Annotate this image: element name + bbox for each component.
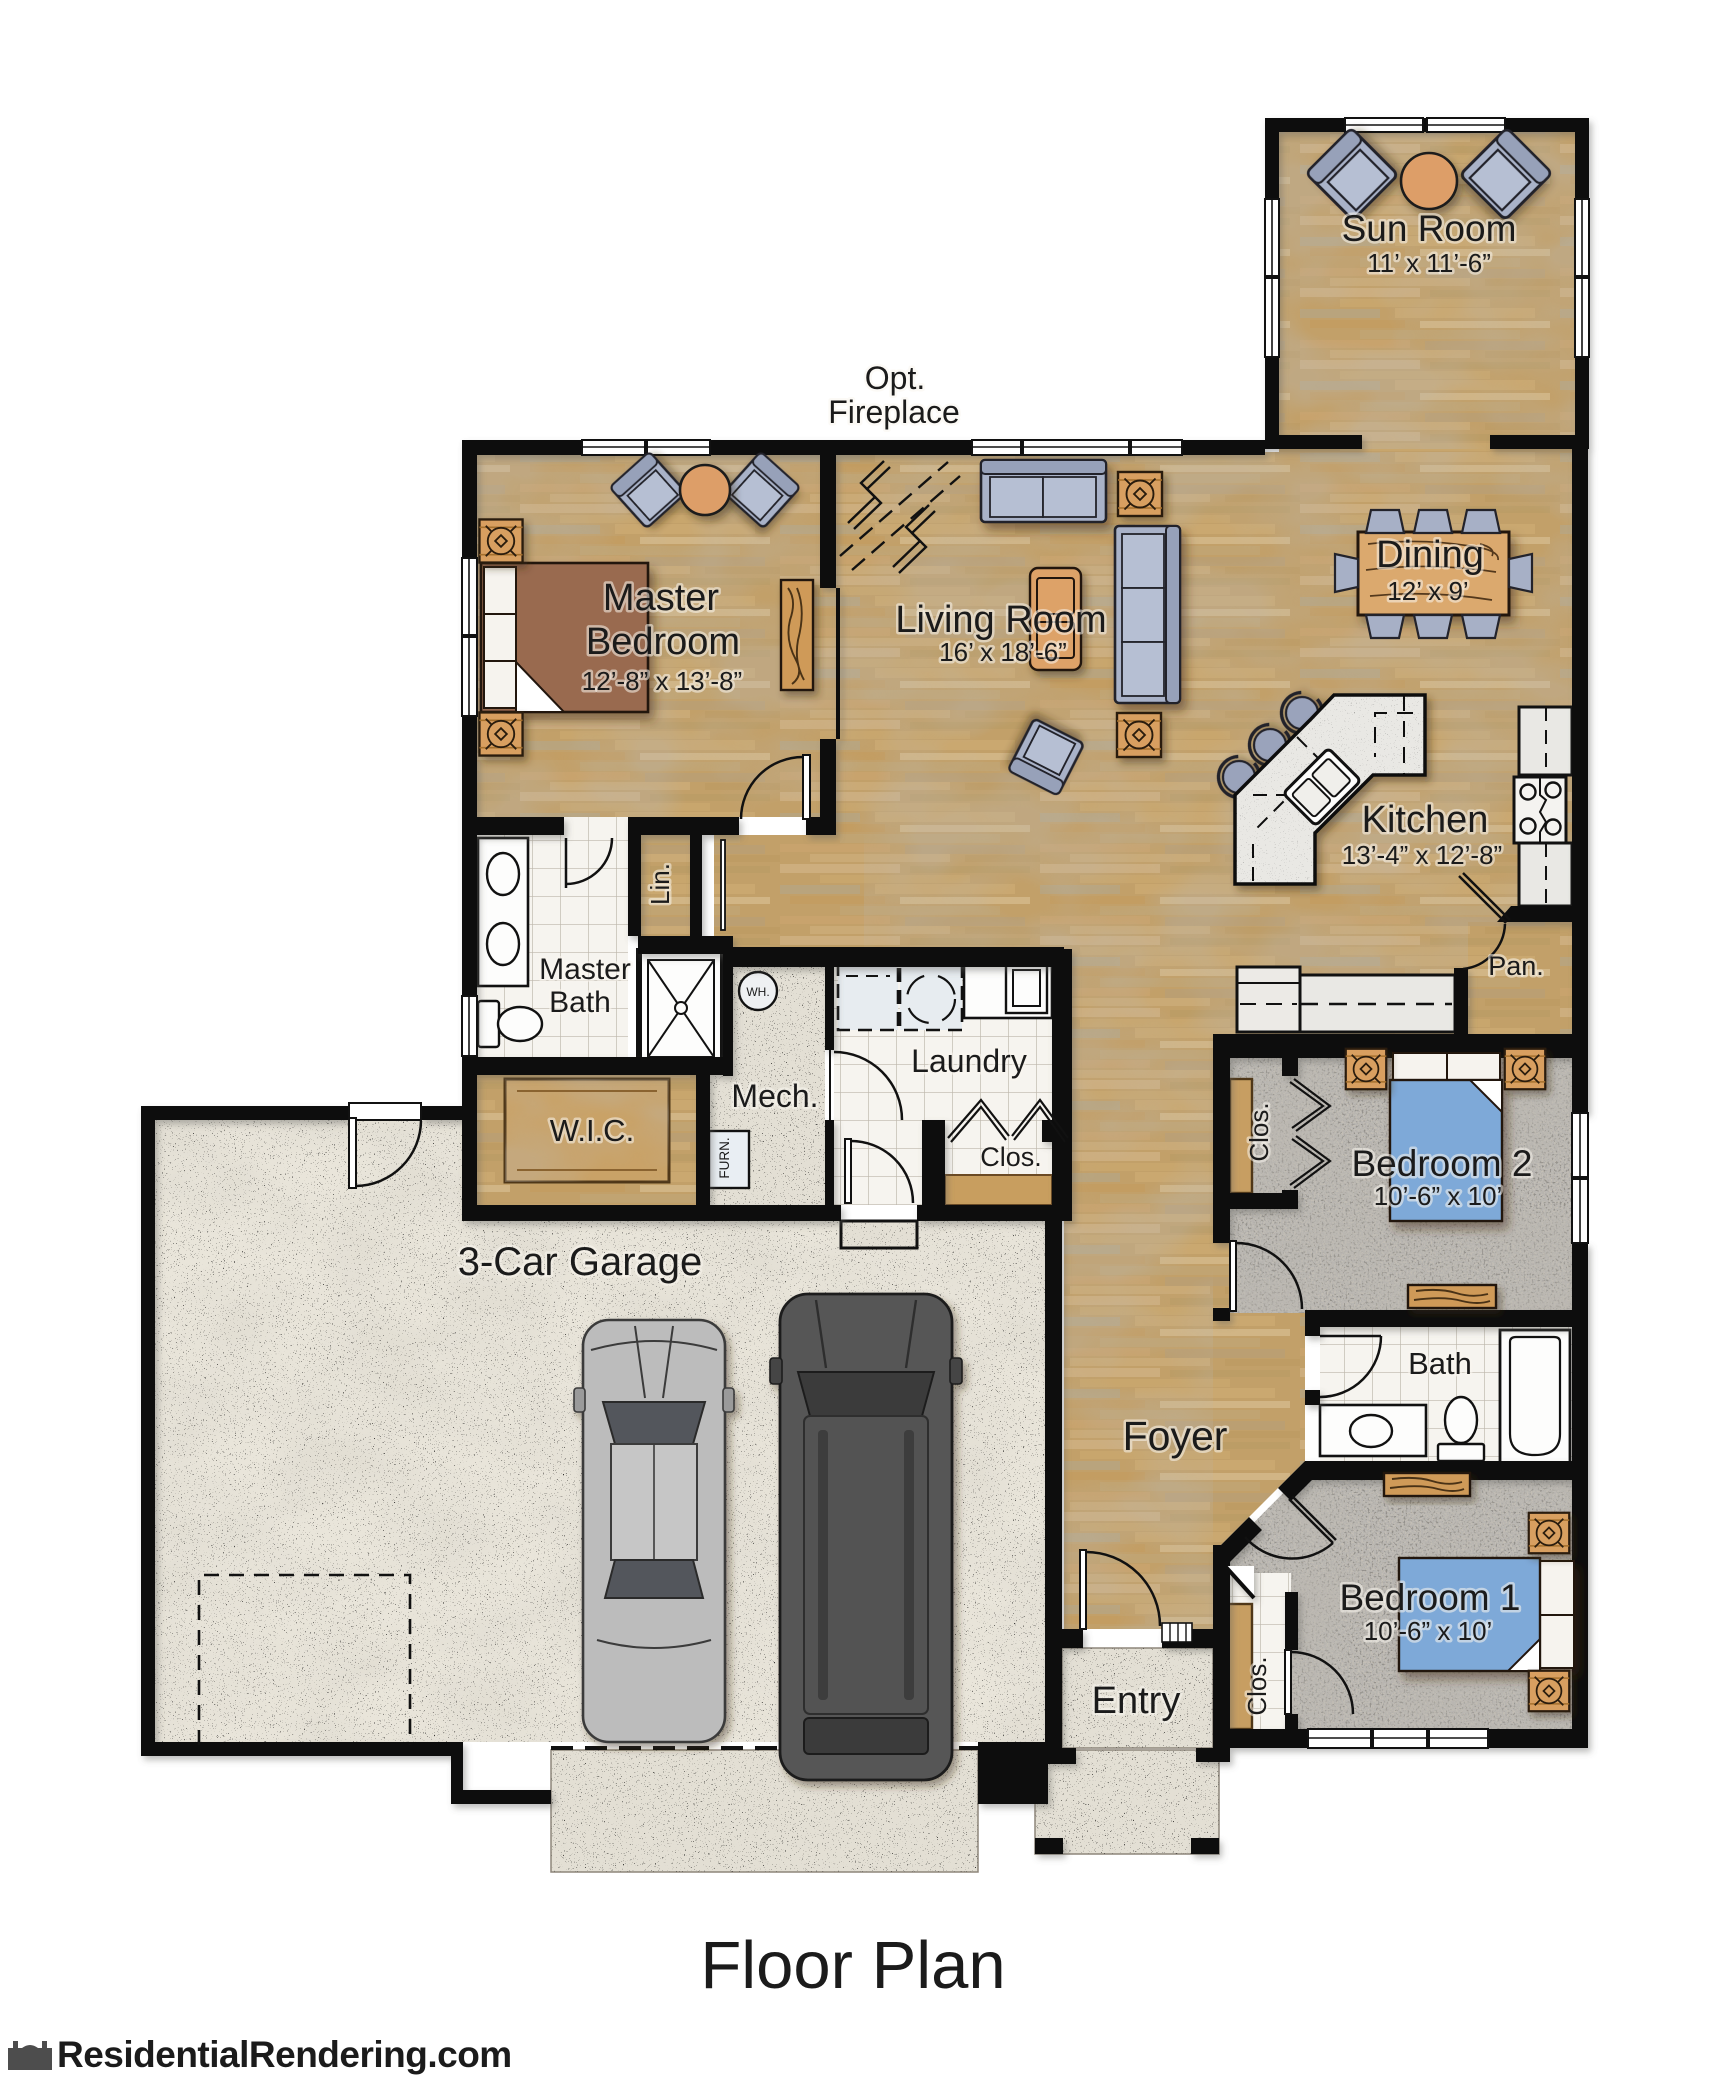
svg-text:12’-8” x 13’-8”: 12’-8” x 13’-8” — [582, 666, 742, 696]
svg-text:Master: Master — [539, 953, 631, 986]
svg-text:FURN.: FURN. — [717, 1137, 732, 1178]
svg-text:Master: Master — [603, 577, 719, 619]
svg-text:10’-6” x 10’: 10’-6” x 10’ — [1374, 1181, 1503, 1211]
svg-text:Sun Room: Sun Room — [1342, 208, 1517, 249]
svg-text:3-Car Garage: 3-Car Garage — [458, 1240, 703, 1284]
svg-text:Bath: Bath — [549, 986, 611, 1019]
svg-text:Entry: Entry — [1092, 1680, 1181, 1722]
svg-text:12’ x 9’: 12’ x 9’ — [1387, 576, 1468, 606]
svg-text:Clos.: Clos. — [1244, 1102, 1274, 1161]
svg-text:Kitchen: Kitchen — [1362, 799, 1489, 841]
svg-text:11’ x 11’-6”: 11’ x 11’-6” — [1367, 248, 1491, 278]
svg-text:Living Room: Living Room — [895, 599, 1106, 641]
svg-text:16’ x 18’-6”: 16’ x 18’-6” — [939, 637, 1067, 667]
svg-text:Bedroom 1: Bedroom 1 — [1340, 1577, 1521, 1618]
svg-text:Dining: Dining — [1376, 534, 1484, 576]
svg-text:W.I.C.: W.I.C. — [550, 1113, 634, 1148]
svg-text:Clos.: Clos. — [1242, 1656, 1272, 1715]
svg-text:Bedroom: Bedroom — [586, 621, 740, 663]
svg-text:Fireplace: Fireplace — [828, 394, 960, 430]
svg-text:Clos.: Clos. — [980, 1142, 1042, 1172]
svg-text:Opt.: Opt. — [865, 360, 925, 396]
svg-text:Foyer: Foyer — [1123, 1413, 1228, 1459]
svg-text:Mech.: Mech. — [731, 1078, 818, 1114]
svg-text:WH.: WH. — [746, 985, 769, 999]
svg-text:13’-4” x 12’-8”: 13’-4” x 12’-8” — [1342, 840, 1502, 870]
svg-text:Bath: Bath — [1408, 1346, 1472, 1381]
svg-text:Floor Plan: Floor Plan — [700, 1928, 1005, 2003]
svg-text:Bedroom 2: Bedroom 2 — [1352, 1143, 1533, 1184]
svg-text:Lin.: Lin. — [645, 863, 675, 905]
svg-text:ResidentialRendering.com: ResidentialRendering.com — [57, 2034, 512, 2075]
svg-text:10’-6” x 10’: 10’-6” x 10’ — [1364, 1616, 1493, 1646]
svg-text:Pan.: Pan. — [1488, 951, 1544, 981]
svg-text:Laundry: Laundry — [911, 1043, 1027, 1079]
